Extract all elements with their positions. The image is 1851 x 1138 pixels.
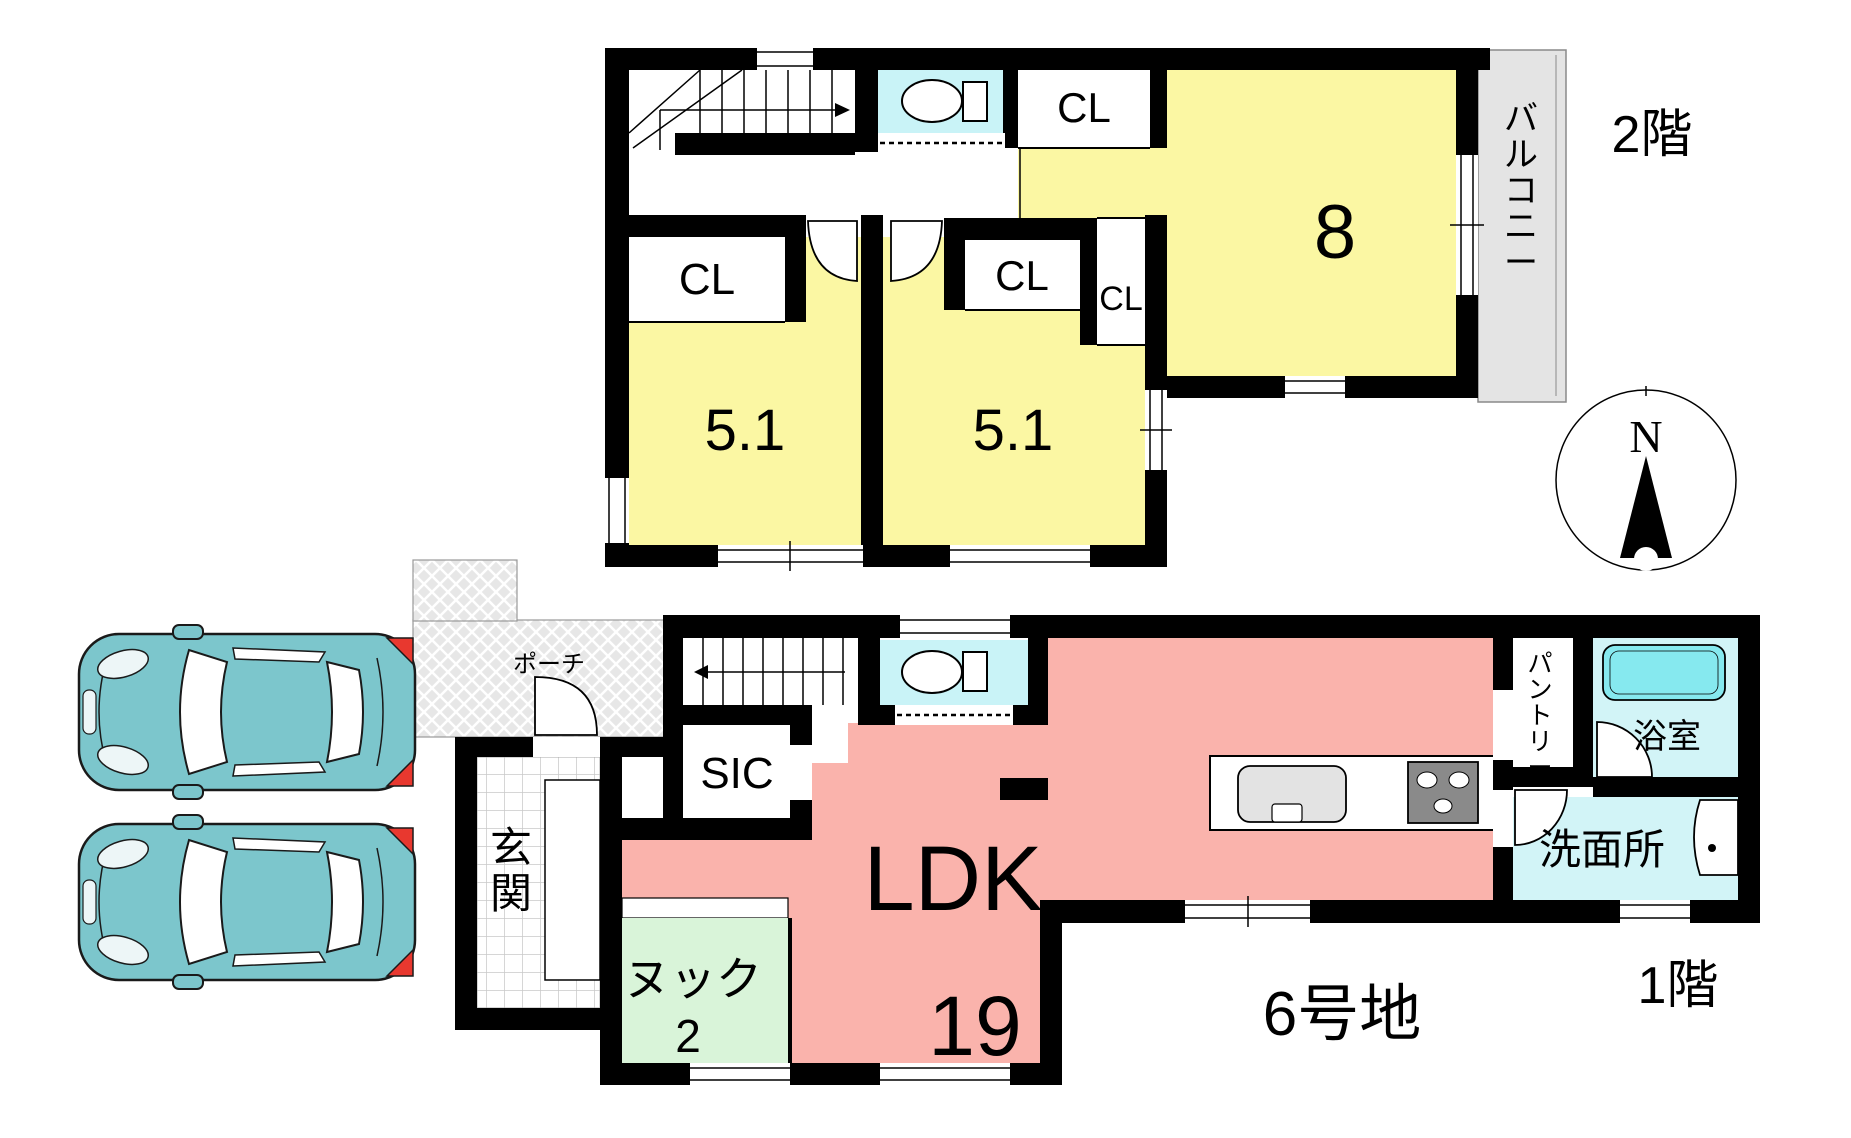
compass-north-label: N [1629,411,1662,462]
bedroom-8-arm [1018,148,1167,218]
bedroom-51-left-label: 5.1 [705,398,786,463]
svg-text:ー: ー [1527,754,1552,782]
car-1 [79,625,415,799]
svg-text:ト: ト [1527,702,1552,730]
nook-counter [622,898,788,918]
nook-label: ヌック [624,953,762,1005]
floor-plan-page: 8 5.1 5.1 CL CL CL CL バ ル コ ニ ー 2階 N [0,0,1851,1138]
entrance-label: 玄 関 [490,824,532,917]
pantry-label: パ ン ト リ ー [1527,650,1552,782]
stove-icon [1408,762,1478,823]
floor1-title: 1階 [1638,957,1719,1015]
svg-text:ニ: ニ [1504,208,1538,246]
svg-text:リ: リ [1527,728,1552,756]
washroom-label: 洗面所 [1539,826,1665,873]
bathtub-icon [1603,645,1725,700]
nook-size-label: 2 [675,1010,701,1062]
floor1-plan: ポーチ 玄 関 SIC LDK 19 ヌック 2 パ ン ト リ ー 浴室 洗面… [413,560,1760,1085]
bedroom-51-right-label: 5.1 [973,398,1054,463]
closet-top-label: CL [1057,84,1111,131]
lot-number-label: 6号地 [1263,980,1421,1049]
entrance-step [545,780,600,980]
balcony-label: バ ル コ ニ ー [1504,100,1538,282]
svg-text:玄: 玄 [490,824,532,871]
svg-text:ル: ル [1504,136,1538,174]
car-2 [79,815,415,989]
bedroom-8-label: 8 [1314,190,1356,275]
sic-label: SIC [700,749,773,798]
svg-text:バ: バ [1504,100,1538,138]
svg-text:関: 関 [490,870,532,917]
ldk-size-label: 19 [928,979,1021,1073]
floor-plan-drawing: 8 5.1 5.1 CL CL CL CL バ ル コ ニ ー 2階 N [0,0,1851,1138]
porch-label: ポーチ [513,651,585,678]
svg-text:パ: パ [1527,650,1552,678]
toilet-icon-1f [902,651,987,693]
closet-small-label: CL [1099,280,1142,318]
bath-label: 浴室 [1633,718,1701,756]
closet-left-label: CL [679,255,735,304]
svg-text:コ: コ [1504,172,1538,210]
bedroom-8 [1167,70,1456,376]
kitchen-counter [1210,756,1510,830]
closet-mid-label: CL [995,252,1049,299]
floor2-plan: 8 5.1 5.1 CL CL CL CL バ ル コ ニ ー 2階 [605,48,1692,571]
floor2-title: 2階 [1612,106,1693,164]
svg-text:ー: ー [1504,244,1538,282]
svg-text:ン: ン [1527,676,1552,704]
staircase-1f [683,638,858,705]
compass: N [1556,386,1736,571]
ldk-label: LDK [864,828,1043,930]
sink-icon [1694,800,1738,875]
